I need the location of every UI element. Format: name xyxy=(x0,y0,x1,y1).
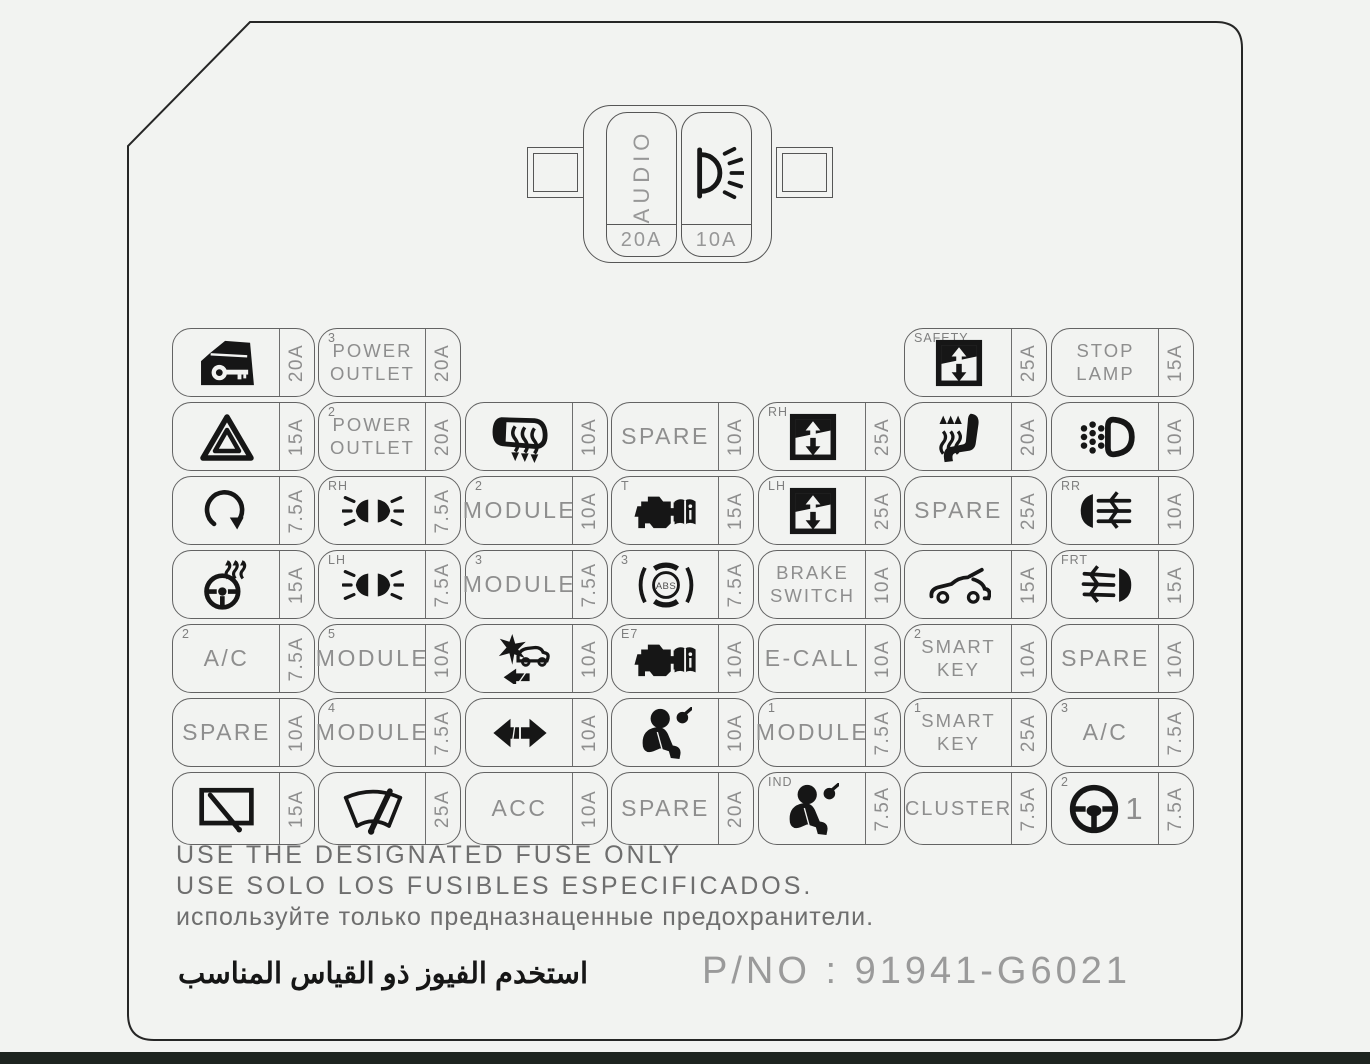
fuse-puller-tab-right xyxy=(776,147,833,198)
fuse-box-label: AUDIO 20A 10A 20A3POWEROUTLET20ASAFETY25… xyxy=(0,0,1370,1064)
rear-fog-icon xyxy=(1077,489,1135,533)
engine-book-icon xyxy=(634,638,698,680)
fuse-cell: 20A xyxy=(172,328,315,397)
fuse-label: STOPLAMP xyxy=(1076,340,1134,384)
svg-text:ABS: ABS xyxy=(655,580,676,591)
amp-rating: 7.5A xyxy=(572,551,607,618)
amp-rating: 7.5A xyxy=(865,699,900,766)
fuse-cell: 217.5A xyxy=(1051,772,1194,845)
fuse-cell: T15A xyxy=(611,476,754,545)
airbag-icon xyxy=(640,707,692,759)
fuse-suffix-label: 1 xyxy=(1125,793,1142,824)
amp-rating: 7.5A xyxy=(718,551,753,618)
rotate-icon xyxy=(203,487,251,535)
amp-rating: 20A xyxy=(425,403,460,470)
warning-line-ar: استخدم الفيوز ذو القياس المناسب xyxy=(178,956,588,991)
seat-heat-icon xyxy=(933,411,985,463)
engine-book-icon xyxy=(634,490,698,532)
fuse-cell: 2A/C7.5A xyxy=(172,624,315,693)
fuse-cell: 10A xyxy=(465,698,608,767)
fuse-label: SPARE xyxy=(182,719,271,747)
fuse-label: CLUSTER xyxy=(905,797,1012,821)
fuse-label: MODULE xyxy=(756,719,869,747)
fuse-label: POWEROUTLET xyxy=(330,340,415,384)
fuse-cell: 15A xyxy=(172,772,315,845)
amp-rating: 10A xyxy=(718,699,753,766)
amp-rating: 7.5A xyxy=(279,477,314,544)
window-icon xyxy=(789,413,837,461)
amp-rating: 10A xyxy=(1158,477,1193,544)
fuse-cell: 2MODULE10A xyxy=(465,476,608,545)
fuse-cell: 5MODULE10A xyxy=(318,624,461,693)
airbag-icon xyxy=(787,783,839,835)
audio-fuse-label: AUDIO xyxy=(629,129,655,224)
amp-rating: 10A xyxy=(572,477,607,544)
drl-icon xyxy=(1077,415,1135,459)
warning-line-en: USE THE DESIGNATED FUSE ONLY xyxy=(176,841,682,870)
fuse-cell: 10A xyxy=(465,402,608,471)
amp-rating: 20A xyxy=(607,224,676,256)
amp-rating: 15A xyxy=(1158,329,1193,396)
fuse-label: SMARTKEY xyxy=(921,636,995,680)
fuse-cell: SPARE10A xyxy=(611,402,754,471)
fuse-label: MODULE xyxy=(316,719,429,747)
fuse-cell: E710A xyxy=(611,624,754,693)
amp-rating: 10A xyxy=(718,403,753,470)
fuse-slot-audio: AUDIO 20A xyxy=(606,112,677,257)
door-lock-icon xyxy=(196,338,258,388)
amp-rating: 7.5A xyxy=(425,551,460,618)
fuse-label: MODULE xyxy=(316,645,429,673)
fuse-label: POWEROUTLET xyxy=(330,414,415,458)
fuse-cell: 2SMARTKEY10A xyxy=(904,624,1047,693)
steering-icon xyxy=(1068,783,1120,835)
mirror-heat-icon xyxy=(489,411,551,463)
fuse-label: A/C xyxy=(204,645,250,673)
fuse-label: BRAKESWITCH xyxy=(770,562,855,606)
amp-rating: 10A xyxy=(865,625,900,692)
amp-rating: 25A xyxy=(865,477,900,544)
amp-rating: 15A xyxy=(1158,551,1193,618)
rear-wiper-icon xyxy=(197,785,257,833)
lamp-icon xyxy=(690,146,744,200)
headlamp-icon xyxy=(342,564,404,606)
fuse-cell: BRAKESWITCH10A xyxy=(758,550,901,619)
amp-rating: 10A xyxy=(1158,403,1193,470)
fuse-cell: SPARE10A xyxy=(172,698,315,767)
fuse-cell: 10A xyxy=(611,698,754,767)
fuse-cell: 3A/C7.5A xyxy=(1051,698,1194,767)
amp-rating: 25A xyxy=(425,773,460,844)
window-icon xyxy=(789,487,837,535)
fuse-cell: 25A xyxy=(318,772,461,845)
amp-rating: 10A xyxy=(572,699,607,766)
warning-line-es: USE SOLO LOS FUSIBLES ESPECIFICADOS. xyxy=(176,872,813,901)
amp-rating: 10A xyxy=(865,551,900,618)
amp-rating: 10A xyxy=(572,773,607,844)
amp-rating: 15A xyxy=(279,403,314,470)
amp-rating: 7.5A xyxy=(1011,773,1046,844)
fuse-cell: SPARE25A xyxy=(904,476,1047,545)
fuse-label: A/C xyxy=(1083,719,1129,747)
fuse-cell: 15A xyxy=(904,550,1047,619)
fuse-cell: ACC10A xyxy=(465,772,608,845)
fuse-cell: 3POWEROUTLET20A xyxy=(318,328,461,397)
window-icon xyxy=(935,339,983,387)
fuse-cell: 10A xyxy=(465,624,608,693)
bottom-edge-strip xyxy=(0,1052,1370,1064)
fuse-cell: FRT15A xyxy=(1051,550,1194,619)
amp-rating: 25A xyxy=(1011,329,1046,396)
amp-rating: 10A xyxy=(1158,625,1193,692)
car-hood-icon xyxy=(927,566,991,604)
amp-rating: 7.5A xyxy=(425,477,460,544)
amp-rating: 25A xyxy=(1011,477,1046,544)
fuse-cell: IND7.5A xyxy=(758,772,901,845)
fuse-label: SPARE xyxy=(1061,645,1150,673)
part-number: P/NO : 91941-G6021 xyxy=(702,950,1131,993)
amp-rating: 20A xyxy=(425,329,460,396)
fuse-cell: 15A xyxy=(172,402,315,471)
fuse-cell: 1MODULE7.5A xyxy=(758,698,901,767)
amp-rating: 7.5A xyxy=(865,773,900,844)
amp-rating: 10A xyxy=(718,625,753,692)
fuse-label: ACC xyxy=(491,795,547,823)
amp-rating: 25A xyxy=(865,403,900,470)
fuse-cell: E-CALL10A xyxy=(758,624,901,693)
amp-rating: 10A xyxy=(572,625,607,692)
fuse-cell: SPARE10A xyxy=(1051,624,1194,693)
amp-rating: 10A xyxy=(1011,625,1046,692)
amp-rating: 20A xyxy=(1011,403,1046,470)
hazard-icon xyxy=(199,412,255,462)
fuse-cell: 3MODULE7.5A xyxy=(465,550,608,619)
amp-rating: 7.5A xyxy=(1158,699,1193,766)
fuse-cell: RR10A xyxy=(1051,476,1194,545)
fuse-cell: 20A xyxy=(904,402,1047,471)
front-wiper-icon xyxy=(342,783,404,835)
fuse-slot-lamp: 10A xyxy=(681,112,752,257)
amp-rating: 20A xyxy=(279,329,314,396)
amp-rating: 15A xyxy=(718,477,753,544)
fuse-label: SPARE xyxy=(621,795,710,823)
arrows-icon xyxy=(489,714,551,752)
warning-line-ru: используйте только предназнаценные предо… xyxy=(176,903,874,932)
steering-heat-icon xyxy=(200,559,254,611)
fuse-cell: RH7.5A xyxy=(318,476,461,545)
fuse-cell: 1SMARTKEY25A xyxy=(904,698,1047,767)
headlamp-icon xyxy=(342,490,404,532)
fuse-label: MODULE xyxy=(463,571,576,599)
amp-rating: 10A xyxy=(425,625,460,692)
front-fog-icon xyxy=(1077,563,1135,607)
amp-rating: 10A xyxy=(279,699,314,766)
fuse-cell: LH7.5A xyxy=(318,550,461,619)
fuse-cell: LH25A xyxy=(758,476,901,545)
amp-rating: 15A xyxy=(279,773,314,844)
fuse-cell: SPARE20A xyxy=(611,772,754,845)
fuse-label: E-CALL xyxy=(765,645,861,673)
fuse-cell: 10A xyxy=(1051,402,1194,471)
amp-rating: 10A xyxy=(682,224,751,256)
amp-rating: 7.5A xyxy=(1158,773,1193,844)
amp-rating: 10A xyxy=(572,403,607,470)
amp-rating: 15A xyxy=(279,551,314,618)
fuse-cell: RH25A xyxy=(758,402,901,471)
fuse-cell: SAFETY25A xyxy=(904,328,1047,397)
fuse-label: SPARE xyxy=(914,497,1003,525)
fuse-cell: 3ABS7.5A xyxy=(611,550,754,619)
amp-rating: 7.5A xyxy=(279,625,314,692)
abs-icon: ABS xyxy=(635,562,697,608)
amp-rating: 20A xyxy=(718,773,753,844)
amp-rating: 15A xyxy=(1011,551,1046,618)
collision-icon xyxy=(489,634,551,684)
fuse-puller-tab-left xyxy=(527,147,584,198)
fuse-cell: CLUSTER7.5A xyxy=(904,772,1047,845)
fuse-cell: STOPLAMP15A xyxy=(1051,328,1194,397)
fuse-cell: 4MODULE7.5A xyxy=(318,698,461,767)
fuse-cell: 2POWEROUTLET20A xyxy=(318,402,461,471)
fuse-label: SPARE xyxy=(621,423,710,451)
fuse-cell: 15A xyxy=(172,550,315,619)
fuse-cell: 7.5A xyxy=(172,476,315,545)
amp-rating: 25A xyxy=(1011,699,1046,766)
amp-rating: 7.5A xyxy=(425,699,460,766)
fuse-label: MODULE xyxy=(463,497,576,525)
fuse-label: SMARTKEY xyxy=(921,710,995,754)
